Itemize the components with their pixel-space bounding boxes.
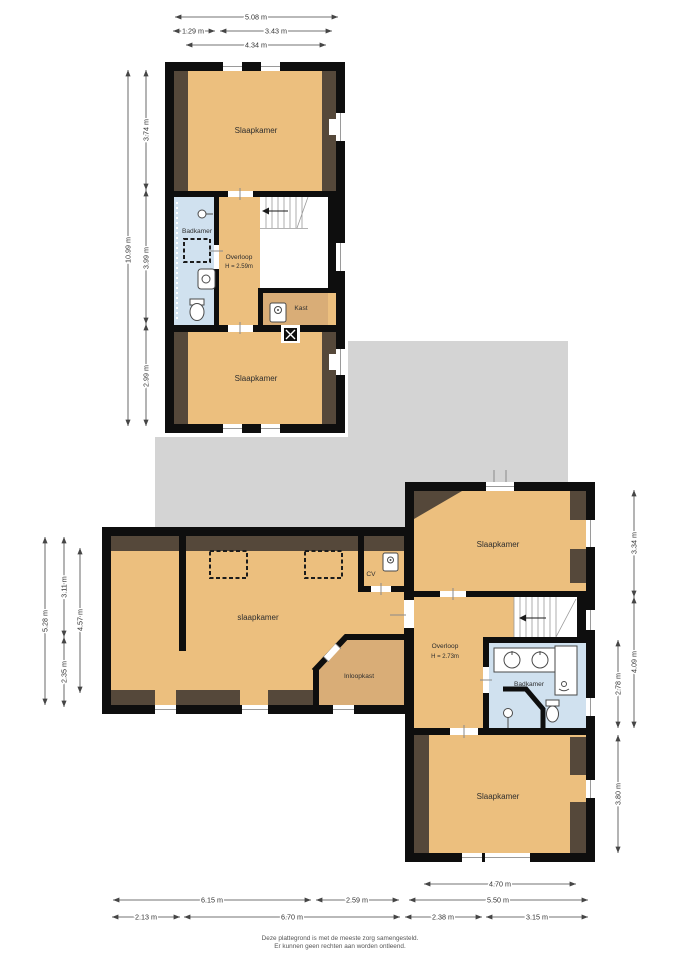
disclaimer-line-2: Er kunnen geen rechten aan worden ontlee… <box>274 943 406 950</box>
dim-label: 4.70 m <box>489 880 511 889</box>
room-label-bedroom-top: Slaapkamer <box>235 126 278 135</box>
room-label-bedroom-left: slaapkamer <box>237 613 279 622</box>
dim-label: 3.80 m <box>614 783 623 805</box>
boiler-icon <box>270 303 286 322</box>
dim-label: 3.15 m <box>526 913 548 922</box>
dim-label: 2.35 m <box>60 661 69 683</box>
dim-label: 2.59 m <box>346 896 368 905</box>
dim-label: 3.99 m <box>142 247 151 269</box>
room-label-bedroom-bottom: Slaapkamer <box>235 374 278 383</box>
dim-label: 2.78 m <box>614 673 623 695</box>
room-label-bedroom-se: Slaapkamer <box>477 792 520 801</box>
room-label-landing: Overloop <box>226 254 253 261</box>
vanity-sinks <box>494 648 558 672</box>
dim-label: 3.34 m <box>630 532 639 554</box>
dim-label: 2.13 m <box>135 913 157 922</box>
toilet-icon <box>190 299 204 321</box>
interior-wall <box>179 536 186 651</box>
dim-label: 3.74 m <box>142 119 151 141</box>
dim-label: 4.57 m <box>76 609 85 631</box>
disclaimer-line-1: Deze plattegrond is met de meeste zorg s… <box>262 935 419 942</box>
room-label-cv: CV <box>366 571 376 578</box>
interior-wall <box>414 591 586 597</box>
dim-label: 3.43 m <box>265 27 287 36</box>
dim-label: 5.28 m <box>41 610 50 632</box>
dim-label: 2.99 m <box>142 365 151 387</box>
room-label-landing: Overloop <box>432 643 459 650</box>
top-floor-plan: Slaapkamer Badkamer Overloop H = 2.59m K… <box>165 62 345 433</box>
first-floor-plan: slaapkamer CV Inloopkast Slaapkamer Over… <box>102 470 595 862</box>
door-opening <box>214 245 219 269</box>
door-opening <box>404 600 414 628</box>
dim-label: 4.09 m <box>630 651 639 673</box>
dim-label: 5.08 m <box>245 13 267 22</box>
shower <box>555 646 577 695</box>
room-label-bathroom: Badkamer <box>514 681 545 688</box>
interior-wall <box>405 728 595 735</box>
dim-label: 6.15 m <box>201 896 223 905</box>
disclaimer: Deze plattegrond is met de meeste zorg s… <box>262 935 419 950</box>
room-label-walk-in-closet: Inloopkast <box>344 673 374 680</box>
toilet-icon <box>546 700 559 722</box>
chimney-icon <box>281 325 300 343</box>
dim-label: 5.50 m <box>487 896 509 905</box>
dim-label: 6.70 m <box>281 913 303 922</box>
room-overloop <box>219 197 260 325</box>
boiler-icon <box>383 553 398 571</box>
room-label-landing-height: H = 2.59m <box>225 264 253 270</box>
dim-label: 2.38 m <box>432 913 454 922</box>
interior-wall <box>483 637 586 643</box>
dim-label: 4.34 m <box>245 41 267 50</box>
room-label-closet: Kast <box>294 305 307 312</box>
floorplan-canvas: Slaapkamer Badkamer Overloop H = 2.59m K… <box>0 0 679 960</box>
dim-label: 10.99 m <box>124 237 133 263</box>
sink-icon <box>198 269 215 289</box>
room-label-bedroom-ne: Slaapkamer <box>477 540 520 549</box>
room-label-bathroom: Badkamer <box>182 228 213 235</box>
dim-label: 3.11 m <box>60 576 69 597</box>
room-label-landing-height: H = 2.73m <box>431 654 459 660</box>
dim-label: 1.29 m <box>182 27 204 36</box>
